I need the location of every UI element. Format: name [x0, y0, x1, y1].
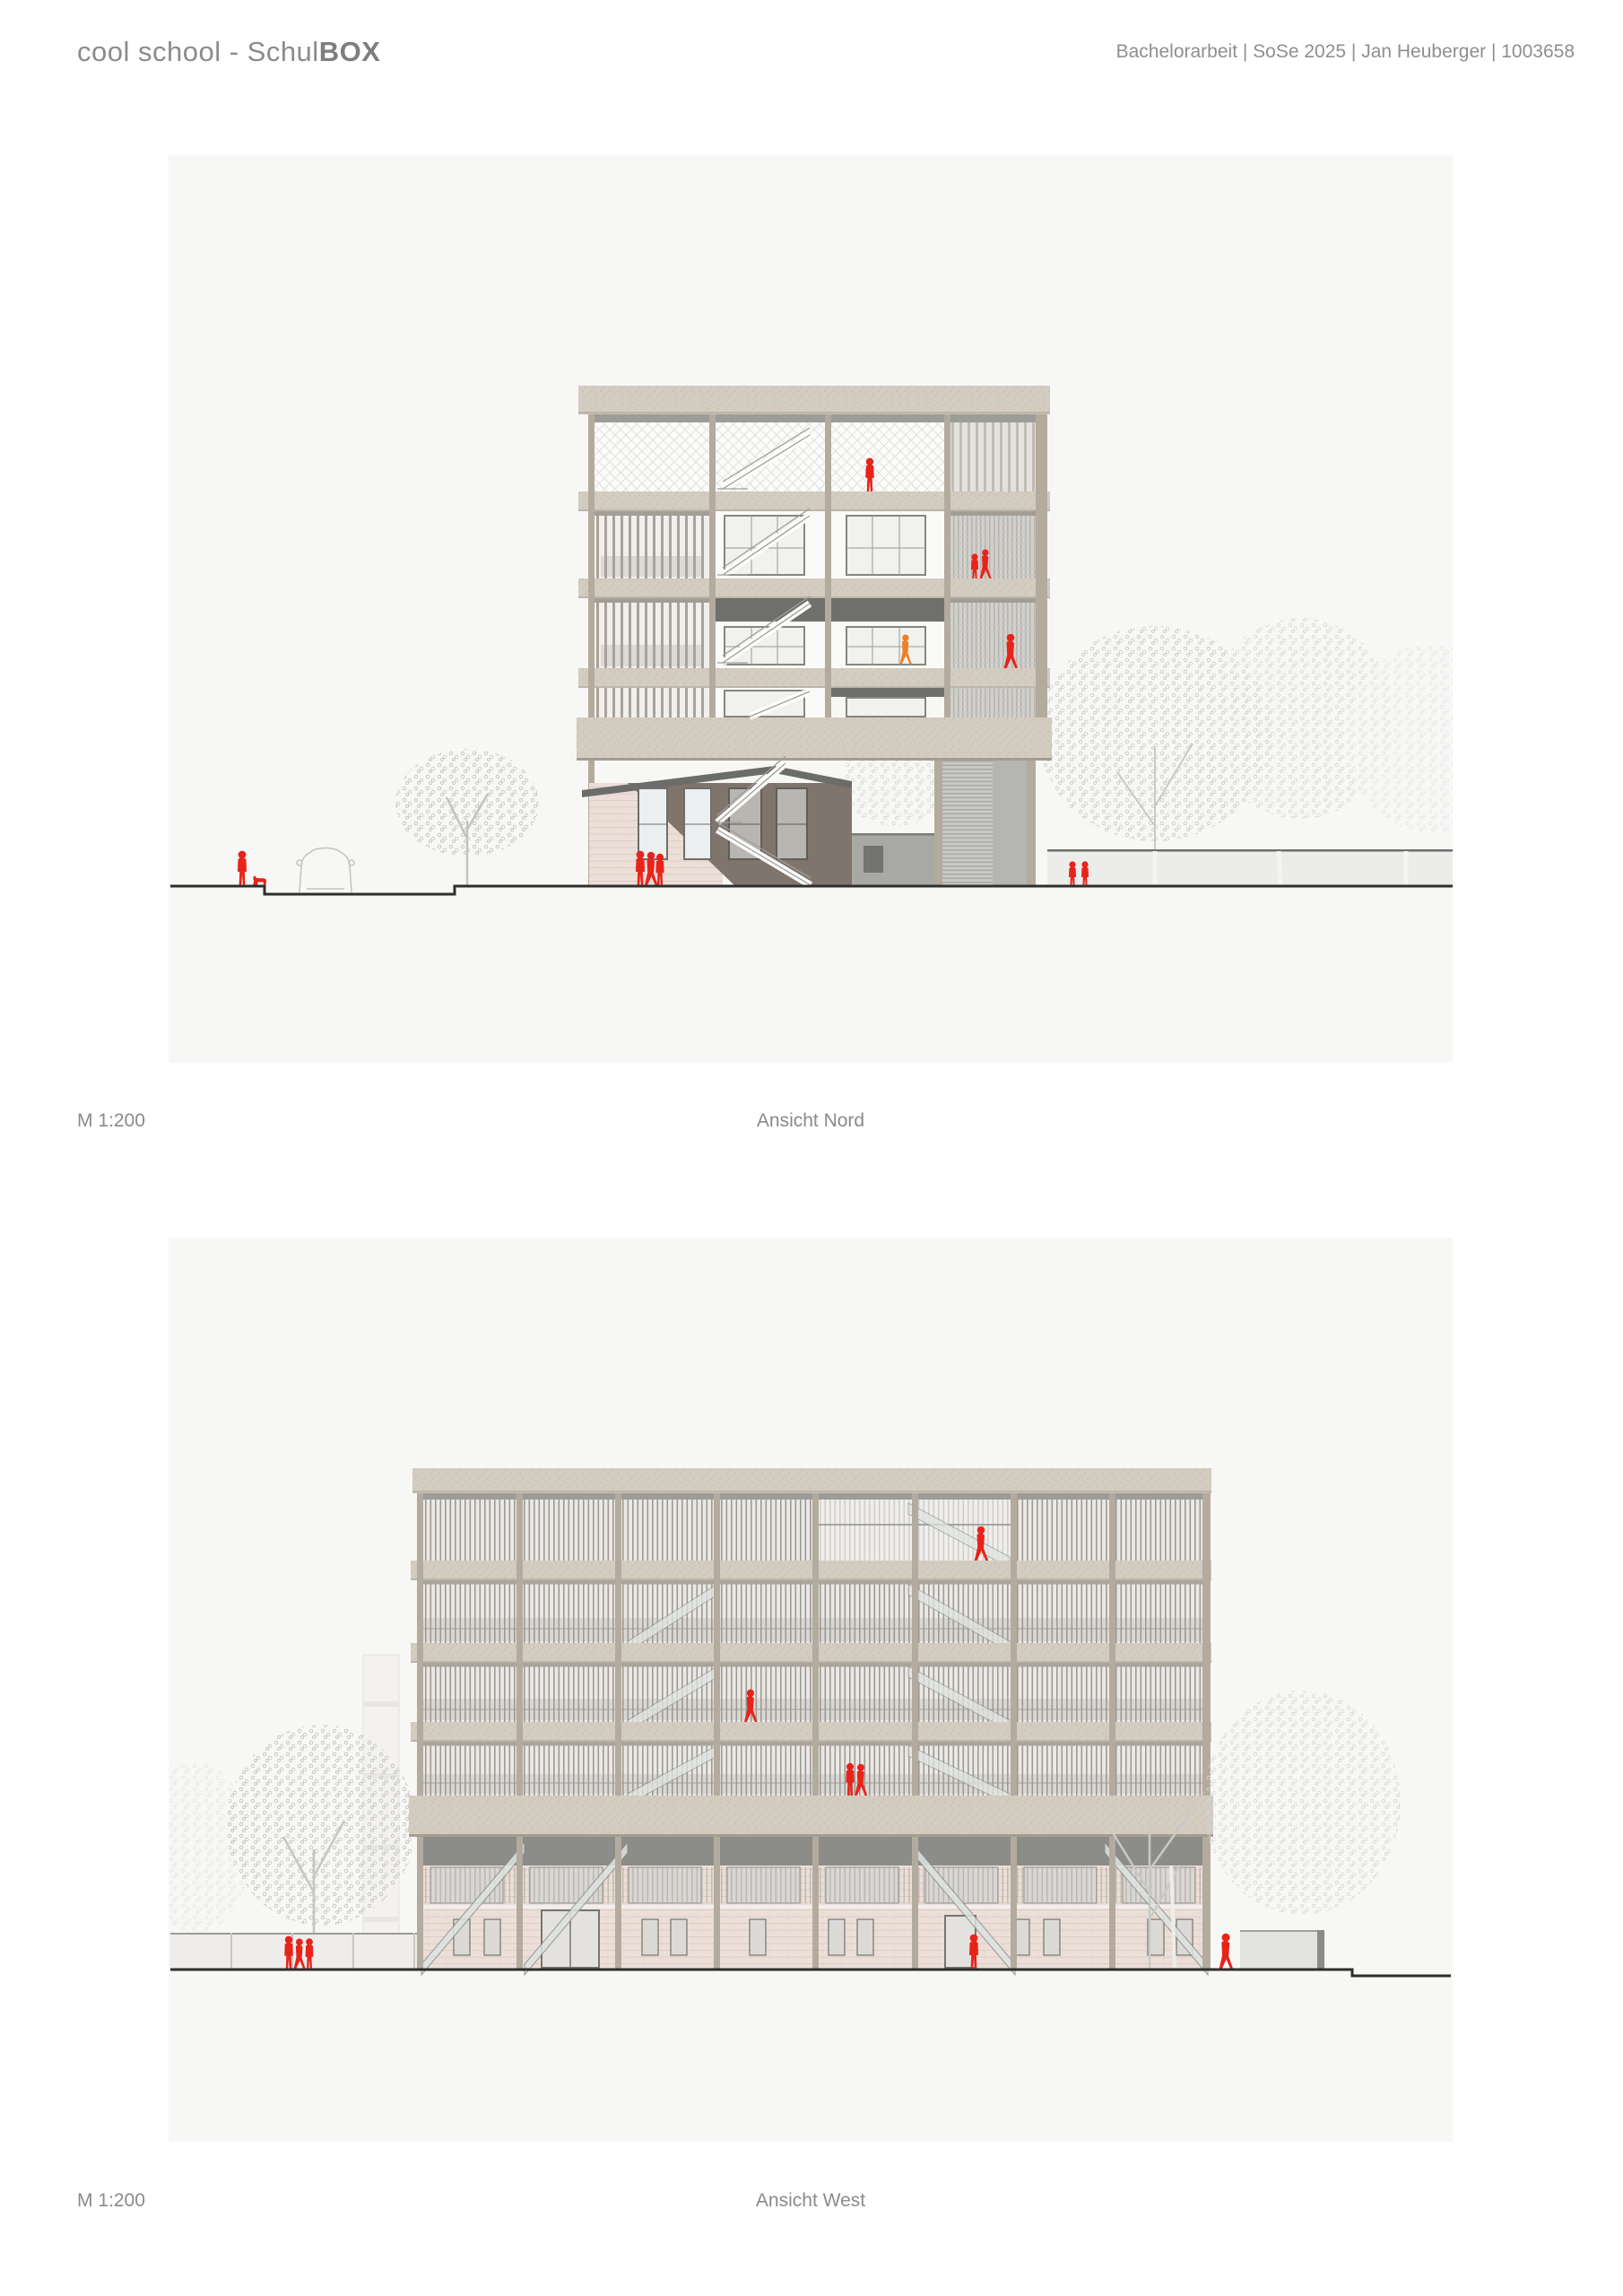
caption-row-west: M 1:200 Ansicht West: [0, 2190, 1623, 2217]
presentation-sheet: cool school - SchulBOX Bachelorarbeit | …: [0, 0, 1623, 2296]
sheet-meta: Bachelorarbeit | SoSe 2025 | Jan Heuberg…: [1116, 41, 1575, 63]
project-title-regular: cool school - Schul: [77, 36, 319, 67]
building-west: [409, 1468, 1213, 1975]
planter-box: [1240, 1930, 1324, 1970]
project-title: cool school - SchulBOX: [77, 36, 380, 68]
scale-label-west: M 1:200: [77, 2190, 145, 2212]
site-wall: [1047, 849, 1453, 886]
car-outline: [297, 848, 354, 893]
building-north: [577, 386, 1052, 761]
caption-row-nord: M 1:200 Ansicht Nord: [0, 1110, 1623, 1137]
scale-label-nord: M 1:200: [77, 1110, 145, 1132]
elevation-west-drawing: [169, 1238, 1453, 2142]
site-fence: [170, 1933, 417, 1970]
drawing-panel-nord: [169, 155, 1453, 1063]
ground-line: [170, 886, 1453, 894]
project-title-bold: BOX: [319, 36, 381, 67]
elevation-north-drawing: [169, 155, 1453, 1063]
drawing-caption-nord: Ansicht Nord: [169, 1110, 1453, 1132]
drawing-caption-west: Ansicht West: [169, 2190, 1453, 2212]
ground-line: [170, 1970, 1451, 1976]
drawing-panel-west: [169, 1238, 1453, 2142]
